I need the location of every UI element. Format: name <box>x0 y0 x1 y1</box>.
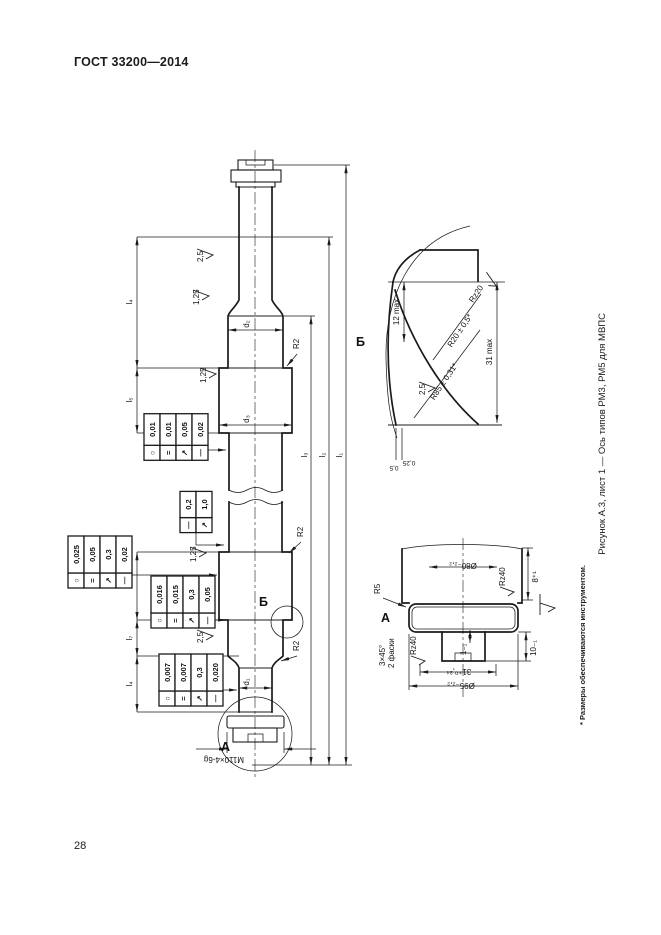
label-r2-2: R2 <box>296 526 305 537</box>
detail-a-title: А <box>381 611 390 625</box>
detail-b-corner-curve <box>393 250 420 282</box>
detail-b-view: Б 12 max 31 max R85 ± 0,31* R20 ± 0,5* R… <box>356 226 505 471</box>
label-12max: 12 max <box>392 299 401 325</box>
label-31max: 31 max <box>485 339 494 365</box>
detail-a-view: А Ø80₋₂,₂ Rz40 8⁺¹ R5 3×45° 2 фаски Rz40 <box>373 538 555 700</box>
label-l5: l₅ <box>125 398 134 403</box>
dim-10-extensions <box>485 632 531 661</box>
frame-value: 0,2 <box>184 499 193 509</box>
text-element: 2,5 <box>196 631 205 643</box>
label-l2: l₂ <box>318 453 327 458</box>
bottom-cap-slot <box>248 734 263 742</box>
extension-lines-right <box>252 165 352 765</box>
detail-b-title: Б <box>356 335 365 349</box>
label-edge-025: 0,25 <box>402 459 415 466</box>
tolerance-frames: ○0,01=0,01↗0,05—0,02 —0,2↗1,0 ○0,025=0,0… <box>68 414 237 706</box>
diameter-dimensions: d₂ d₃ d₁ <box>219 320 292 688</box>
frame-symbol: = <box>179 696 188 701</box>
frame-value: 0,3 <box>104 549 113 559</box>
extension-lines-left <box>137 237 333 712</box>
detail-b-edge-extensions <box>396 428 402 460</box>
callout-label-a: А <box>221 740 230 754</box>
frame-symbol: — <box>196 449 205 457</box>
thread-dimension: М110×4-6g <box>196 732 316 764</box>
path-element <box>500 587 514 596</box>
tolerance-frame-wheel-seat-1: ○0,01=0,01↗0,05—0,02 <box>144 414 208 461</box>
text-element: 2,5 <box>196 250 205 262</box>
roughness-125-1: 1,25 <box>192 289 209 305</box>
roughness-rz40-1: Rz40 <box>498 567 514 596</box>
label-thread: М110×4-6g <box>204 755 244 764</box>
detail-b-surface <box>420 250 478 281</box>
top-cap-slot <box>246 160 265 165</box>
label-1: 1₋₁ <box>459 643 468 655</box>
frame-symbol: — <box>211 694 220 702</box>
detail-a-thread-collar <box>409 604 518 632</box>
text-element: Rz40 <box>498 567 507 586</box>
label-8: 8⁺¹ <box>531 571 540 583</box>
frame-value: 0,01 <box>164 422 173 437</box>
label-chamfer: 3×45° <box>378 645 387 666</box>
label-r2-3: R2 <box>292 640 301 651</box>
label-d1: d₁ <box>242 678 251 685</box>
label-r2-1: R2 <box>292 338 301 349</box>
axle-bottom-plate <box>227 716 284 728</box>
label-l3: l₃ <box>300 452 309 457</box>
frame-symbol: ↗ <box>104 577 113 583</box>
tolerance-frame-wheel-seat-2a: ○0,025=0,05↗0,3—0,02 <box>68 536 132 588</box>
top-step <box>236 182 275 187</box>
label-r5: R5 <box>373 583 382 594</box>
frame-symbol: ↗ <box>195 695 204 701</box>
roughness-125-2: 1,25 <box>199 367 216 383</box>
label-r85: R85 ± 0,31* <box>428 362 459 402</box>
callout-circle-b <box>271 606 303 638</box>
frame-value: 0,3 <box>187 589 196 599</box>
tolerance-frame-wheel-seat-2b: ○0,016=0,015↗0,3—0,05 <box>151 576 215 628</box>
frame-symbol: — <box>203 616 212 624</box>
frame-symbol: = <box>171 618 180 623</box>
callout-label-b: Б <box>259 595 268 609</box>
shaft-left-upper <box>219 187 239 490</box>
frame-value: 0,025 <box>72 545 81 564</box>
frame-value: 0,02 <box>120 547 129 562</box>
break-line-top <box>229 488 283 493</box>
detail-b-groove-curve <box>395 290 478 424</box>
text-element: 2,5 <box>418 383 427 395</box>
roughness-25-3: 2,5 <box>196 630 213 643</box>
label-l1: l₁ <box>335 452 344 457</box>
frame-symbol: = <box>164 450 173 455</box>
frame-value: 0,05 <box>203 587 212 602</box>
roughness-rz20: Rz20 <box>467 272 500 309</box>
frame-value: 0,020 <box>211 663 220 682</box>
frame-symbol: ○ <box>155 618 164 623</box>
path-element <box>411 656 425 665</box>
shaft-right-upper <box>272 187 292 490</box>
path-element <box>540 594 555 615</box>
label-dia-thread: Ø95₋₂,₂ <box>447 681 475 690</box>
document-page: ГОСТ 33200—2014 28 Рисунок А.3, лист 1 —… <box>0 0 661 935</box>
label-10: 10₋₁ <box>529 640 538 656</box>
roughness-any-icon <box>540 594 555 615</box>
radius-callouts: R2 R2 R2 <box>281 338 305 661</box>
label-31: 31⁺⁰,³⁴ <box>446 667 471 676</box>
label-l4-bottom: l₄ <box>125 681 134 686</box>
frame-value: 0,3 <box>195 667 204 677</box>
text-element: Rz20 <box>467 283 485 304</box>
text-element: Rz40 <box>409 636 418 655</box>
label-d2: d₂ <box>242 320 251 328</box>
callout-circles: Б А <box>218 595 303 771</box>
frame-value: 0,016 <box>155 585 164 604</box>
frame-value: 0,007 <box>163 663 172 682</box>
roughness-rz40-2: Rz40 <box>409 636 425 665</box>
r2-leader-2 <box>289 542 301 553</box>
main-view: l₄ l₅ l₆ l₇ l₄ l₃ l₂ l₁ d₂ <box>68 150 352 778</box>
roughness-25-1: 2,5 <box>196 249 213 262</box>
label-chamfer-note: 2 фаски <box>387 638 396 668</box>
frame-symbol: — <box>184 521 193 529</box>
shoulder-faces <box>219 316 292 712</box>
detail-a-thread-inner <box>412 607 515 629</box>
tolerance-frame-journal: ○0,007=0,007↗0,3—0,020 <box>159 654 223 706</box>
frame-value: 0,007 <box>179 663 188 682</box>
r2-leader-1 <box>287 354 297 366</box>
label-edge-05: 0,5 <box>389 464 398 471</box>
frame-symbol: — <box>120 576 129 584</box>
frame-value: 0,01 <box>148 422 157 437</box>
frame-symbol: ○ <box>72 578 81 583</box>
roughness-125-3: 1,25 <box>189 546 206 562</box>
tolerance-frame-middle-part: —0,2↗1,0 <box>180 491 212 532</box>
frame-value: 0,05 <box>180 422 189 437</box>
label-l7: l₇ <box>125 635 134 640</box>
frame-value: 0,015 <box>171 585 180 604</box>
frame-leader-2 <box>196 533 224 545</box>
label-d3: d₃ <box>242 415 251 423</box>
frame-value: 1,0 <box>200 499 209 509</box>
label-l4-top: l₄ <box>125 299 134 304</box>
detail-a-break-line <box>402 545 522 550</box>
frame-symbol: ○ <box>163 696 172 701</box>
overall-dimensions: l₃ l₂ l₁ <box>252 165 352 765</box>
frame-symbol: ↗ <box>187 617 196 623</box>
frame-symbol: ↗ <box>200 522 209 528</box>
axle-top-plate <box>231 170 281 182</box>
frame-symbol: = <box>88 578 97 583</box>
axle-technical-drawing: l₄ l₅ l₆ l₇ l₄ l₃ l₂ l₁ d₂ <box>0 0 661 935</box>
frame-value: 0,02 <box>196 422 205 437</box>
break-line-bottom <box>229 500 283 505</box>
label-dia-groove: Ø80₋₂,₂ <box>449 561 477 570</box>
frame-value: 0,05 <box>88 547 97 562</box>
frame-symbol: ↗ <box>180 450 189 456</box>
frame-symbol: ○ <box>148 451 157 456</box>
axle-outline <box>219 160 292 742</box>
